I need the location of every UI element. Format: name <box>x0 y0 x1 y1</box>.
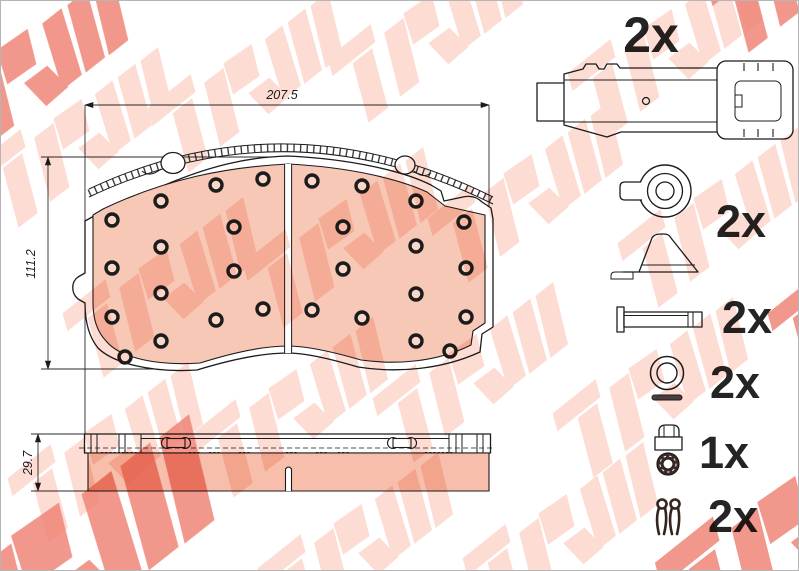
rivet-hole <box>356 180 368 192</box>
cotter-pin-drawing <box>657 500 679 535</box>
rivet-hole <box>460 311 472 323</box>
brake-pad-technical-diagram: 207.5 111.2 <box>0 0 799 571</box>
rivet-hole <box>356 312 368 324</box>
rivet-hole <box>306 304 318 316</box>
rivet-hole <box>257 303 269 315</box>
rivet-hole <box>444 345 456 357</box>
side-backing-plate <box>85 434 491 453</box>
pin-drawing <box>617 307 702 332</box>
rivet-hole <box>106 214 118 226</box>
front-view: 207.5 111.2 <box>24 88 493 434</box>
rivet-hole <box>155 335 167 347</box>
side-friction-material <box>88 453 489 491</box>
qty-label-cotter-pin: 2x <box>708 491 758 542</box>
rivet-hole <box>337 263 349 275</box>
rivet-hole <box>228 265 240 277</box>
parts-column: 2x <box>537 7 793 542</box>
qty-label-washer: 2x <box>710 357 760 408</box>
dimension-thickness-value: 29.7 <box>21 450 35 476</box>
rivet-hole <box>155 287 167 299</box>
dimension-height: 111.2 <box>24 157 48 369</box>
qty-label-retainer-plate: 2x <box>623 7 679 63</box>
rivet-hole <box>210 179 222 191</box>
rivet-hole <box>410 240 422 252</box>
rivet-hole <box>458 216 470 228</box>
rivet-hole <box>210 314 222 326</box>
rivet-hole <box>257 173 269 185</box>
qty-label-nut: 1x <box>699 427 749 478</box>
rivet-hole <box>460 262 472 274</box>
side-view: 29.7 <box>21 434 495 491</box>
qty-label-guide-boot: 2x <box>716 196 766 247</box>
dimension-thickness: 29.7 <box>21 434 88 491</box>
dimension-width-value: 207.5 <box>265 88 297 102</box>
rivet-hole <box>155 241 167 253</box>
rivet-hole <box>119 351 131 363</box>
rivet-hole <box>410 288 422 300</box>
technical-drawing: 207.5 111.2 <box>1 1 799 571</box>
washer-drawing <box>651 357 684 401</box>
rivet-hole <box>155 195 167 207</box>
rivet-hole <box>306 175 318 187</box>
rivet-hole <box>410 195 422 207</box>
rivet-hole <box>228 221 240 233</box>
rivet-hole <box>337 221 349 233</box>
rivet-hole <box>106 311 118 323</box>
rivet-hole <box>410 335 422 347</box>
retainer-plate-drawing <box>537 61 793 139</box>
dimension-height-value: 111.2 <box>24 249 38 278</box>
center-groove <box>285 164 292 353</box>
guide-boot-drawing <box>611 165 698 279</box>
dimension-width: 207.5 <box>85 88 489 105</box>
nut-drawing <box>655 425 682 475</box>
rivet-hole <box>106 262 118 274</box>
qty-label-pin: 2x <box>722 292 772 343</box>
